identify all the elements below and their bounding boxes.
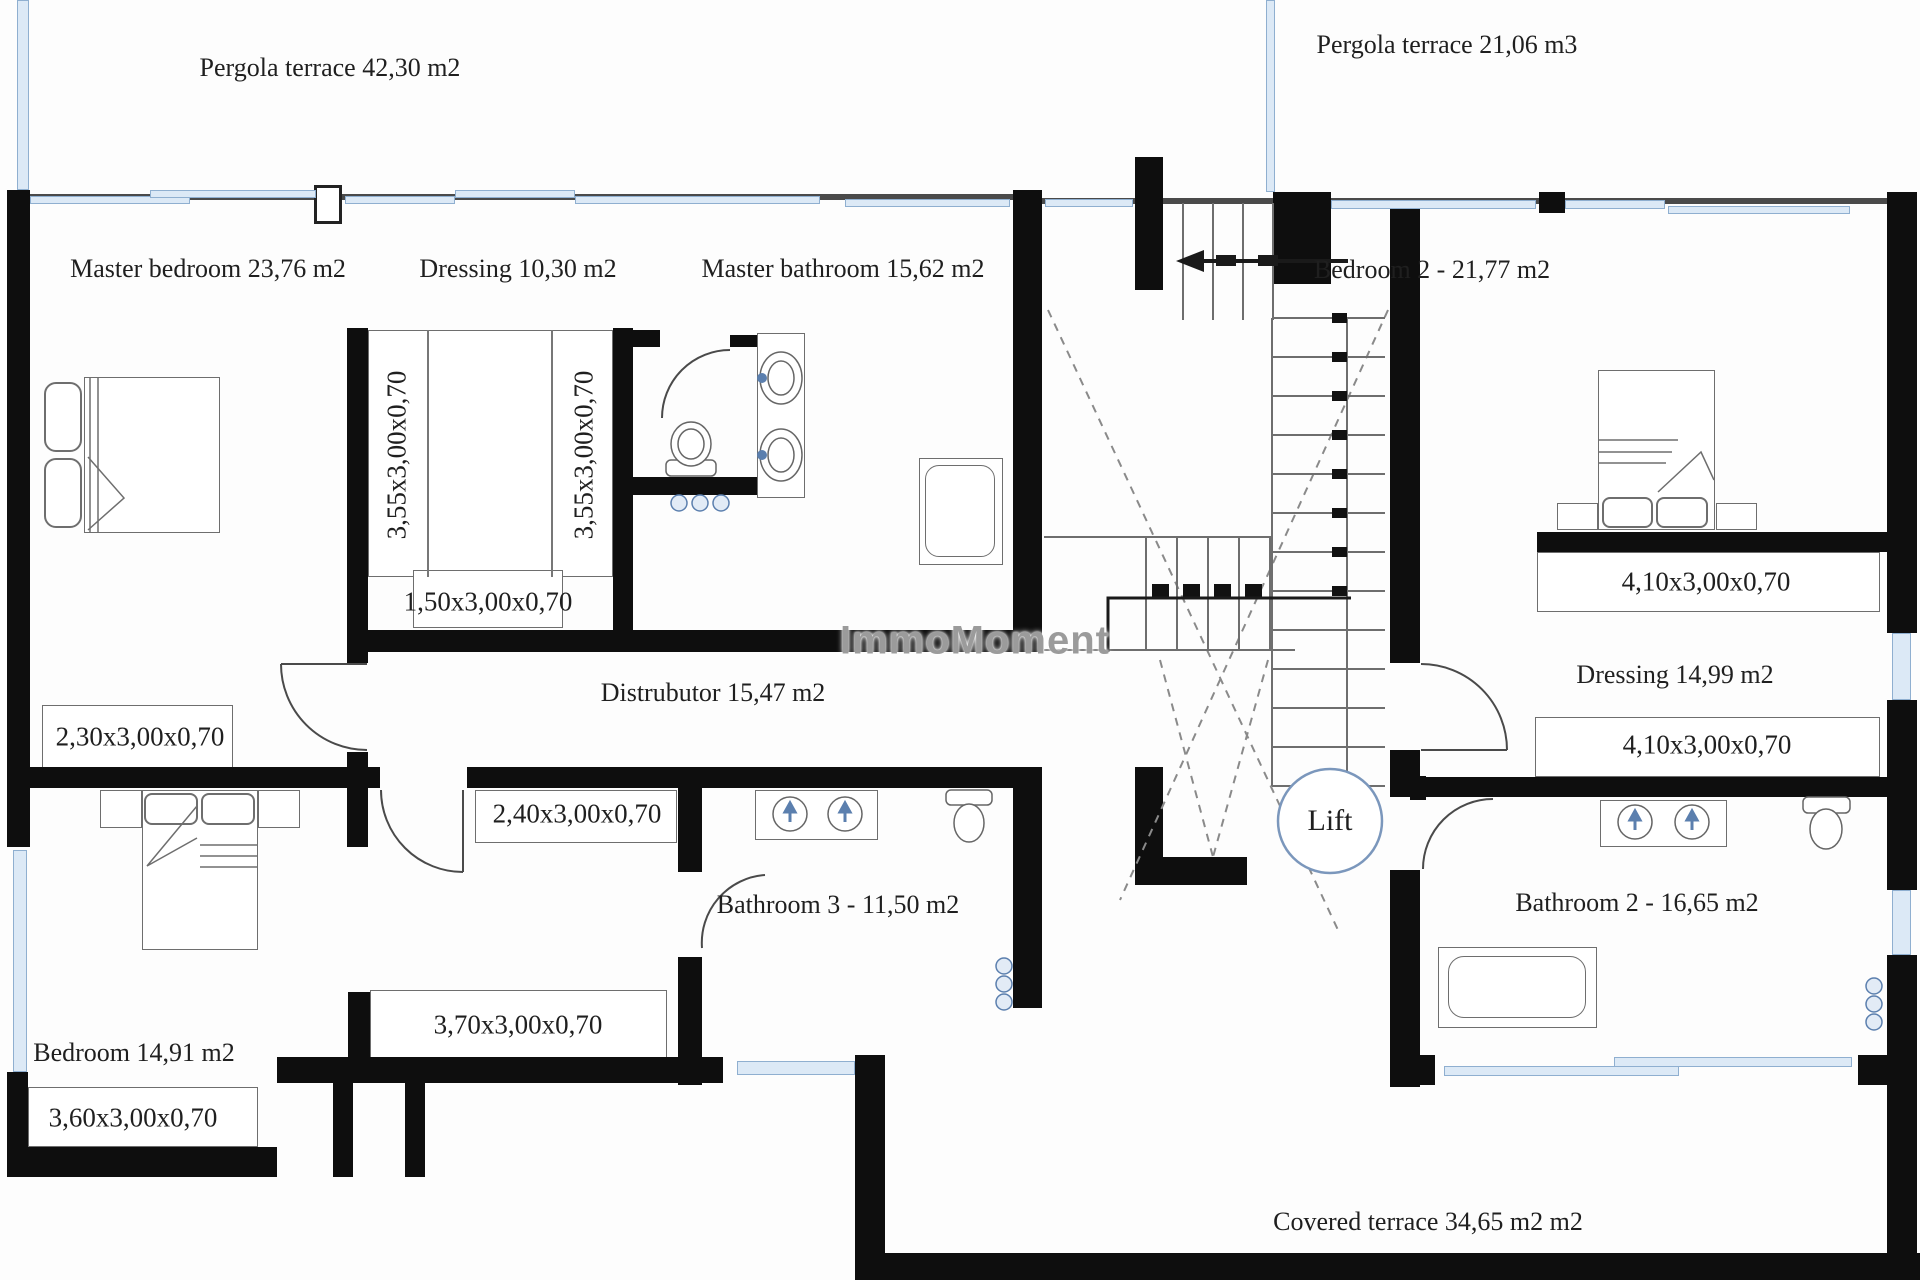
label-bedroom-3: Bedroom 14,91 m2	[33, 1038, 235, 1068]
door-dressing-2	[1421, 664, 1507, 750]
label-distributor: Distrubutor 15,47 m2	[601, 678, 826, 708]
stair-right-flight	[1272, 318, 1385, 790]
bed-3-lines	[147, 806, 258, 867]
label-covered-terrace: Covered terrace 34,65 m2 m2	[1273, 1207, 1583, 1237]
floor-plan: Pergola terrace 42,30 m2 Pergola terrace…	[0, 0, 1920, 1280]
label-lift: Lift	[1308, 804, 1353, 838]
dim-closet-410-bottom: 4,10x3,00x0,70	[1623, 730, 1792, 761]
door-master-bedroom	[281, 664, 367, 750]
dim-closet-240: 2,40x3,00x0,70	[493, 799, 662, 830]
door-bathroom-2	[1423, 799, 1493, 869]
label-pergola-left: Pergola terrace 42,30 m2	[200, 53, 461, 83]
label-dressing-1: Dressing 10,30 m2	[419, 254, 616, 284]
sink	[760, 352, 802, 481]
sink	[1618, 805, 1709, 839]
watermark: ImmoMoment	[840, 619, 1110, 664]
label-bathroom-2: Bathroom 2 - 16,65 m2	[1515, 888, 1758, 918]
dim-closet-360: 3,60x3,00x0,70	[49, 1103, 218, 1134]
dim-closet-230: 2,30x3,00x0,70	[56, 722, 225, 753]
dim-closet-370: 3,70x3,00x0,70	[434, 1010, 603, 1041]
label-master-bedroom: Master bedroom 23,76 m2	[70, 254, 346, 284]
label-pergola-right: Pergola terrace 21,06 m3	[1317, 30, 1578, 60]
bed-master-lines	[88, 377, 124, 533]
door-bedroom-3	[381, 790, 463, 872]
sink	[773, 797, 862, 831]
stair-landing-rail	[1108, 598, 1351, 652]
stair-arrow-head	[1176, 250, 1204, 272]
dim-wardrobe-left: 3,55x3,00x0,70	[382, 371, 413, 540]
label-bathroom-3: Bathroom 3 - 11,50 m2	[717, 890, 959, 920]
door-wc	[662, 350, 730, 418]
dim-closet-410-top: 4,10x3,00x0,70	[1622, 567, 1791, 598]
dim-dresser-150: 1,50x3,00x0,70	[404, 587, 573, 618]
label-master-bathroom: Master bathroom 15,62 m2	[701, 254, 984, 284]
dim-wardrobe-right: 3,55x3,00x0,70	[569, 371, 600, 540]
bed-2-lines	[1598, 440, 1714, 492]
label-dressing-2: Dressing 14,99 m2	[1576, 660, 1773, 690]
stair-right-ticks	[1332, 313, 1347, 596]
label-bedroom-2: Bedroom 2 - 21,77 m2	[1314, 255, 1550, 285]
